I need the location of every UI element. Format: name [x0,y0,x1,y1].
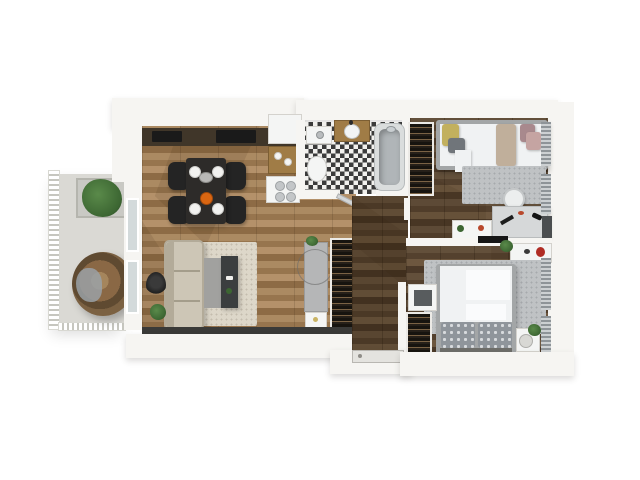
hanging-chair-cushion [76,268,102,302]
balcony-door-glass-lower [126,260,139,314]
sofa [164,240,204,330]
mug-icon [284,158,292,166]
wall-bathroom-bottom-left [296,190,338,199]
hall-cabinet [304,242,328,312]
shelf-plant-icon [500,240,513,252]
washer-knob-icon [316,131,324,139]
bedroom1-slatted-wardrobe [408,122,434,196]
living-window-frame [142,327,356,334]
nightstand-basket-icon [519,334,533,348]
blanket-tan-icon [496,124,516,166]
mug-icon [274,152,282,160]
bedroom2-pillow-icon [441,322,475,348]
balcony-railing-icon [48,170,60,330]
nightstand-plant-icon [528,324,541,336]
sofa-seam [174,270,200,272]
plate-icon [212,166,224,178]
balcony-bush-icon [82,179,122,217]
tub-faucet-icon [386,126,396,133]
wall-top-right [296,100,558,120]
burner-icon [286,181,296,191]
balcony-door-glass-upper [126,198,139,252]
cabinet-plant-icon [306,236,318,246]
coffee-table-right [221,256,238,308]
kitchen-cabinet-wood [268,146,298,174]
wall-bathroom-left [296,120,305,198]
bedroom2-window-blinds [541,258,551,310]
bathtub-icon [374,123,405,191]
burner-icon [286,192,296,202]
balcony-railing-bottom-icon [58,322,126,331]
floor-plan-render [0,0,640,480]
faucet-icon [349,120,353,125]
plate-icon [212,203,224,215]
dresser-item-icon [478,225,484,231]
cabinet-knob-icon [313,317,318,322]
wall-left-upper [112,98,142,182]
bedroom1-corner-wardrobe [542,216,552,240]
dining-chair [224,162,246,190]
dining-chair [224,196,246,224]
shelf-books-red-icon [536,247,545,257]
remote-icon [226,276,233,280]
table-plant-icon [226,288,232,294]
bedroom2-sheet-fold [466,270,510,300]
plate-icon [189,203,201,215]
desk-item-red-icon [518,211,524,215]
decor-fan-icon [146,272,166,298]
burner-icon [275,192,285,202]
bathtub-basin [379,129,400,185]
sofa-backrest [166,242,174,328]
dresser-plant-icon [457,225,464,232]
bedroom2-tv-screen [414,290,432,306]
bedroom1-window-blinds [541,174,551,214]
pillow-pink-icon [526,132,541,150]
vanity-sink-icon [344,124,360,139]
hob-icon [152,131,182,142]
bedroom1-window-blinds [541,122,551,166]
orange-dish-icon [200,192,213,205]
bedroom2-sheet-fold [466,304,506,320]
shelf-item-icon [524,249,530,254]
burner-icon [275,181,285,191]
sink-icon [216,130,256,143]
bedroom2-slatted-wardrobe [406,312,432,356]
teapot-icon [199,172,213,183]
toilet-icon [307,156,327,182]
wall-bottom-living [126,334,360,358]
bedroom2-pillow-icon [478,322,512,348]
cabinet-arc-detail [297,249,333,285]
entry-door-handle-icon [358,354,362,358]
coffee-table-left [204,258,221,308]
bedroom2-window-blinds [541,316,551,354]
wall-bottom-bedroom2 [400,352,574,376]
floor-plant-icon [150,304,166,320]
sofa-seam [174,300,200,302]
